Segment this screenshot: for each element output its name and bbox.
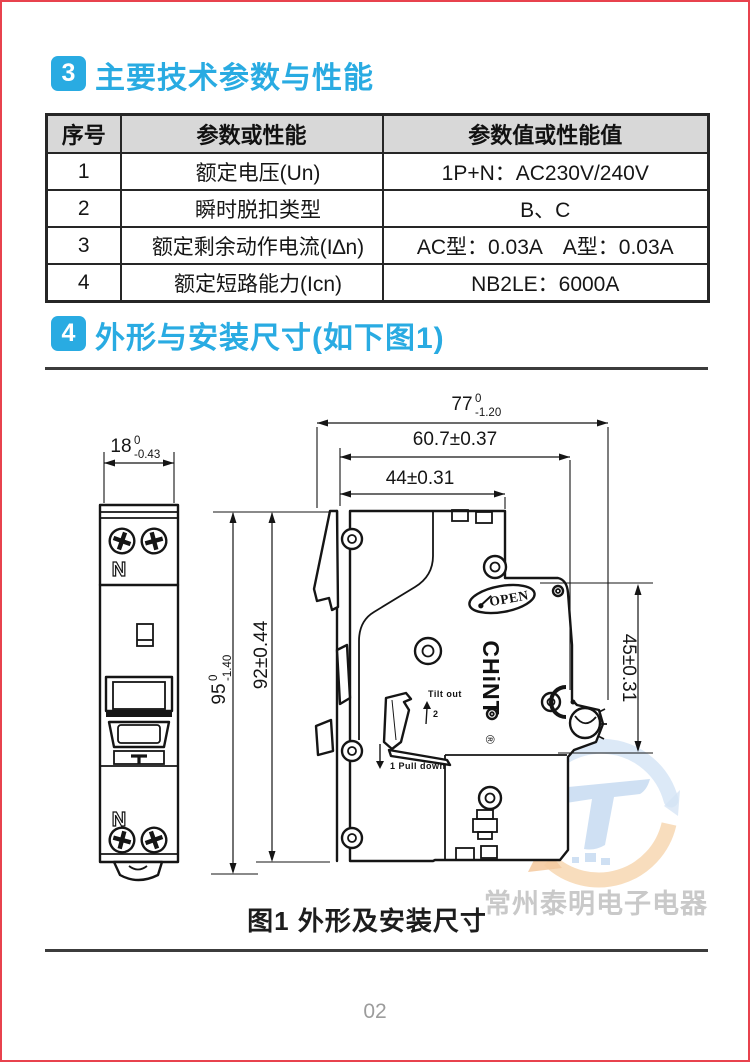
neutral-label-top: N [112,559,126,581]
divider-top [45,367,708,370]
dim-607-value: 60.7±0.37 [413,429,497,450]
dim-77-sub: -1.20 [475,407,501,419]
cell-value: B、C [383,190,709,227]
cell-value: AC型：0.03A A型：0.03A [383,227,709,264]
cell-no: 3 [47,227,121,264]
table-row: 2 瞬时脱扣类型 B、C [47,190,709,227]
front-view-drawing: N N [100,505,178,880]
dimension-95-92: 95 0 -1.40 92±0.44 [208,512,330,874]
dimension-18: 18 0 -0.43 [104,435,174,503]
header-param: 参数或性能 [121,115,383,154]
cell-value: 1P+N：AC230V/240V [383,153,709,190]
brand-logo-text: CHiNT [478,640,504,715]
cell-no: 4 [47,264,121,302]
section4-badge: 4 [51,316,86,351]
dimension-44: 44±0.31 [340,468,505,509]
section3-badge-number: 3 [62,59,76,88]
table-row: 4 额定短路能力(Icn) NB2LE：6000A [47,264,709,302]
cell-param: 瞬时脱扣类型 [121,190,383,227]
step2-label: 2 [433,709,439,719]
cell-no: 1 [47,153,121,190]
cell-no: 2 [47,190,121,227]
cell-param: 额定电压(Un) [121,153,383,190]
section4-badge-number: 4 [62,319,76,348]
section3-badge: 3 [51,56,86,91]
watermark-text: 常州泰明电子电器 [484,882,708,921]
dim-92-value: 92±0.44 [251,620,272,689]
header-value: 参数值或性能值 [383,115,709,154]
table-header-row: 序号 参数或性能 参数值或性能值 [47,115,709,154]
dim-45-value: 45±0.31 [618,634,639,703]
manual-page: 3 主要技术参数与性能 序号 参数或性能 参数值或性能值 1 额定电压(Un) … [0,0,750,1062]
page-number: 02 [0,1000,750,1024]
header-no: 序号 [47,115,121,154]
dim-95-value: 95 [209,683,230,704]
divider-bottom [45,949,708,952]
side-view-drawing: OPEN CHiNT ® [314,510,607,861]
dim-95-sub: -1.40 [222,655,234,681]
pull-down-label: 1 Pull down [390,761,446,771]
cell-param: 额定短路能力(Icn) [121,264,383,302]
spec-table: 序号 参数或性能 参数值或性能值 1 额定电压(Un) 1P+N：AC230V/… [45,113,710,303]
dim-18-sup: 0 [134,435,140,447]
section4-title: 外形与安装尺寸(如下图1) [95,313,445,357]
figure1-technical-drawing: T N [45,385,708,945]
registered-mark: ® [483,735,497,744]
cell-param: 额定剩余动作电流(I∆n) [121,227,383,264]
dim-77-sup: 0 [475,393,481,405]
table-row: 1 额定电压(Un) 1P+N：AC230V/240V [47,153,709,190]
dim-44-value: 44±0.31 [386,468,455,489]
dim-18-value: 18 [110,436,131,457]
dim-18-sub: -0.43 [134,449,160,461]
table-row: 3 额定剩余动作电流(I∆n) AC型：0.03A A型：0.03A [47,227,709,264]
tilt-out-label: Tilt out [428,689,462,699]
section3-title: 主要技术参数与性能 [95,53,374,97]
dim-77-value: 77 [451,394,472,415]
cell-value: NB2LE：6000A [383,264,709,302]
dim-95-sup: 0 [208,675,220,681]
